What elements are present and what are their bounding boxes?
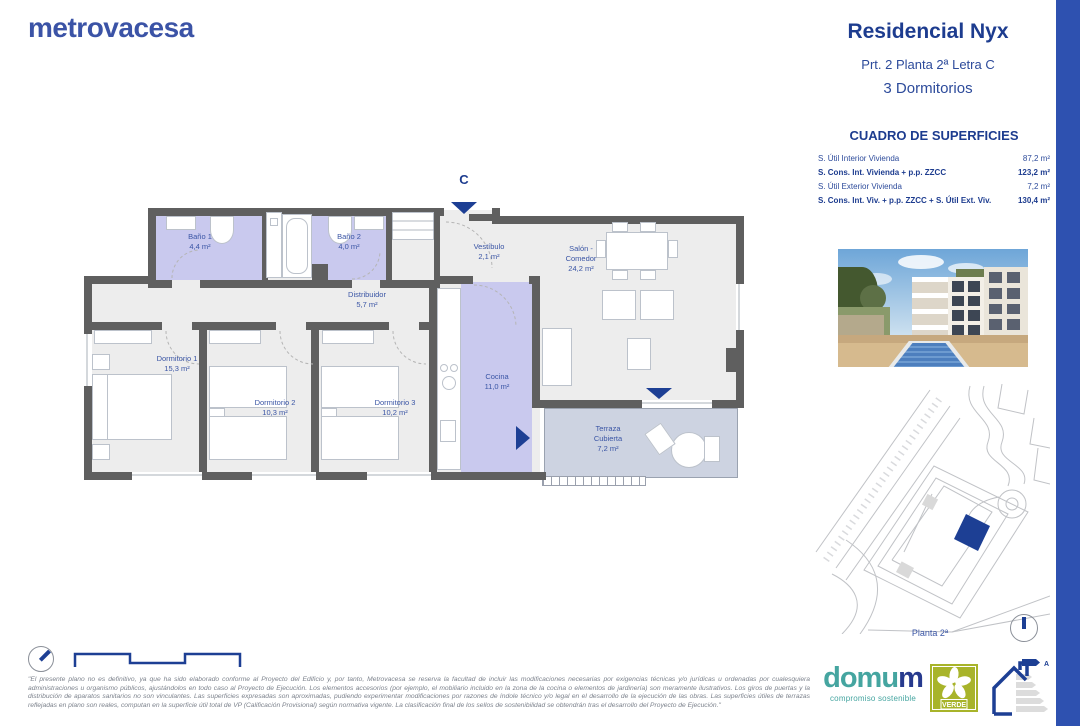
room-name: Distribuidor [336, 290, 398, 300]
surface-label: S. Cons. Int. Viv. + p.p. ZZCC + S. Útil… [818, 196, 991, 205]
surface-label: S. Útil Interior Vivienda [818, 154, 899, 163]
pergola [838, 315, 884, 337]
cloud [898, 255, 944, 269]
window [952, 325, 964, 336]
verde-label: VERDE [942, 702, 966, 709]
chair [612, 222, 628, 232]
floorplan: C Baño 1 4,4 m² Baño [84, 188, 752, 490]
wall-segment [437, 276, 473, 284]
surface-value: 123,2 m² [1018, 168, 1050, 177]
bedroom-count: 3 Dormitorios [798, 80, 1058, 97]
sofa [542, 328, 572, 386]
door-opening [172, 280, 200, 288]
armchair [640, 290, 674, 320]
sink [166, 216, 196, 230]
surfaces-title: CUADRO DE SUPERFICIES [816, 128, 1052, 143]
domum-tagline: compromiso sostenible [818, 694, 928, 703]
bed [321, 416, 399, 460]
north-arrow-icon [28, 646, 54, 672]
surface-value: 87,2 m² [1023, 154, 1050, 163]
surface-row: S. Útil Exterior Vivienda 7,2 m² [816, 179, 1052, 193]
sink [354, 216, 384, 230]
room-label-vestibulo: Vestíbulo 2,1 m² [458, 242, 520, 262]
terrace-chair [704, 436, 720, 462]
wardrobe [209, 330, 261, 344]
wall-segment [312, 264, 328, 280]
window [1007, 319, 1020, 330]
verde-certification-badge: VERDE [930, 664, 978, 712]
door-opening [162, 322, 192, 330]
coffee-table [627, 338, 651, 370]
kitchen-sink [440, 420, 456, 442]
surfaces-table: CUADRO DE SUPERFICIES S. Útil Interior V… [816, 128, 1052, 207]
wall-segment [532, 282, 540, 408]
terrace-table [671, 432, 707, 468]
legal-disclaimer: "El presente plano no es definitivo, ya … [28, 676, 810, 711]
nightstand [92, 354, 110, 370]
window [968, 310, 980, 321]
surface-label: S. Cons. Int. Vivienda + p.p. ZZCC [818, 168, 946, 177]
window [952, 281, 964, 292]
door-opening [352, 280, 380, 288]
window [989, 288, 1002, 299]
bed [209, 416, 287, 460]
room-area: 11,0 m² [466, 382, 528, 392]
room-name: Baño 1 [170, 232, 230, 242]
site-plan-floor-label: Planta 2ª [898, 628, 962, 638]
wall-segment [92, 322, 432, 330]
surface-row: S. Cons. Int. Viv. + p.p. ZZCC + S. Útil… [816, 193, 1052, 207]
window [989, 319, 1002, 330]
wall-segment [311, 322, 319, 472]
wardrobe [322, 330, 374, 344]
room-label-bano1: Baño 1 4,4 m² [170, 232, 230, 252]
room-label-salon: Salón - Comedor 24,2 m² [555, 244, 607, 273]
bed-pillow [92, 374, 108, 440]
hob-burner [450, 364, 458, 372]
room-area: 2,1 m² [458, 252, 520, 262]
compass-icon [1010, 614, 1038, 642]
chair [612, 270, 628, 280]
room-name: Dormitorio 3 [362, 398, 428, 408]
surface-row: S. Cons. Int. Vivienda + p.p. ZZCC 123,2… [816, 165, 1052, 179]
energy-grade-label: A [1044, 661, 1049, 668]
door-opening [276, 322, 306, 330]
window [968, 325, 980, 336]
wall-segment [199, 322, 207, 472]
chair [640, 270, 656, 280]
wall-segment [84, 276, 156, 284]
window [1007, 288, 1020, 299]
scale-bar [72, 648, 244, 670]
room-area: 10,2 m² [362, 408, 428, 418]
window [367, 472, 431, 480]
window [968, 296, 980, 307]
room-label-terraza: Terraza Cubierta 7,2 m² [583, 424, 633, 453]
room-area: 4,4 m² [170, 242, 230, 252]
site-plan [812, 384, 1050, 634]
compass-needle [1022, 617, 1026, 629]
energy-efficiency-icon: A [986, 658, 1052, 718]
sliding-door [642, 400, 712, 408]
room-label-distribuidor: Distribuidor 5,7 m² [336, 290, 398, 310]
right-accent-bar [1056, 0, 1080, 726]
unit-highlight [954, 514, 990, 551]
room-name: Baño 2 [319, 232, 379, 242]
nightstand [92, 444, 110, 460]
window [1007, 272, 1020, 283]
door-opening [389, 322, 419, 330]
wall-segment [434, 210, 440, 280]
room-area: 10,3 m² [242, 408, 308, 418]
entrance-marker-label: C [444, 172, 484, 187]
window [952, 310, 964, 321]
unit-reference: Prt. 2 Planta 2ª Letra C [798, 57, 1058, 72]
wall-segment [532, 400, 642, 408]
room-label-dormitorio1: Dormitorio 1 15,3 m² [146, 354, 208, 374]
room-label-bano2: Baño 2 4,0 m² [319, 232, 379, 252]
hall-closet [392, 212, 434, 240]
surface-value: 7,2 m² [1027, 182, 1050, 191]
balconies [912, 277, 948, 339]
grade-arrow [1022, 659, 1040, 666]
domum-logo: domum compromiso sostenible [818, 664, 928, 703]
room-area: 24,2 m² [555, 264, 607, 274]
page-title: Residencial Nyx [798, 20, 1058, 44]
header: Residencial Nyx Prt. 2 Planta 2ª Letra C… [798, 20, 1058, 97]
room-name: Salón - Comedor [555, 244, 607, 264]
room-name: Vestíbulo [458, 242, 520, 252]
room-name: Terraza Cubierta [583, 424, 633, 444]
building-photo [838, 249, 1028, 367]
energy-bars [1016, 674, 1048, 712]
metrovacesa-logo: metrovacesa [28, 12, 194, 44]
window [968, 281, 980, 292]
nightstand [321, 408, 337, 417]
room-label-dormitorio3: Dormitorio 3 10,2 m² [362, 398, 428, 418]
entrance-arrow-icon [451, 202, 477, 214]
room-area: 4,0 m² [319, 242, 379, 252]
wardrobe [94, 330, 152, 344]
hob-burner [442, 376, 456, 390]
window [84, 334, 92, 386]
closet-detail [270, 218, 278, 226]
north-needle [39, 650, 51, 662]
wall-segment [429, 282, 437, 472]
domum-logo-text: domu [823, 662, 898, 694]
dining-table [606, 232, 668, 270]
chair [668, 240, 678, 258]
room-label-cocina: Cocina 11,0 m² [466, 372, 528, 392]
window [132, 472, 202, 480]
facade-windows [948, 277, 984, 339]
room-name: Cocina [466, 372, 528, 382]
hob-burner [440, 364, 448, 372]
window [252, 472, 316, 480]
domum-logo-text: m [898, 662, 923, 694]
window [989, 272, 1002, 283]
room-area: 7,2 m² [583, 444, 633, 454]
terrace-edge-ticks [542, 476, 646, 486]
nightstand [209, 408, 225, 417]
room-name: Dormitorio 1 [146, 354, 208, 364]
window [952, 296, 964, 307]
room-area: 5,7 m² [336, 300, 398, 310]
bathtub-basin [286, 218, 308, 274]
window [736, 284, 744, 330]
chair [640, 222, 656, 232]
terrace-access-arrow-icon [646, 388, 672, 399]
kitchen-access-arrow-icon [516, 426, 530, 450]
room-label-dormitorio2: Dormitorio 2 10,3 m² [242, 398, 308, 418]
side-building [984, 267, 1028, 335]
wall-segment [712, 400, 744, 408]
window [989, 304, 1002, 315]
surface-label: S. Útil Exterior Vivienda [818, 182, 902, 191]
wall-pillar [726, 348, 738, 372]
room-area: 15,3 m² [146, 364, 208, 374]
surface-value: 130,4 m² [1018, 196, 1050, 205]
room-name: Dormitorio 2 [242, 398, 308, 408]
plan-sheet: metrovacesa Residencial Nyx Prt. 2 Plant… [0, 0, 1080, 726]
surface-row: S. Útil Interior Vivienda 87,2 m² [816, 151, 1052, 165]
window [1007, 304, 1020, 315]
armchair [602, 290, 636, 320]
